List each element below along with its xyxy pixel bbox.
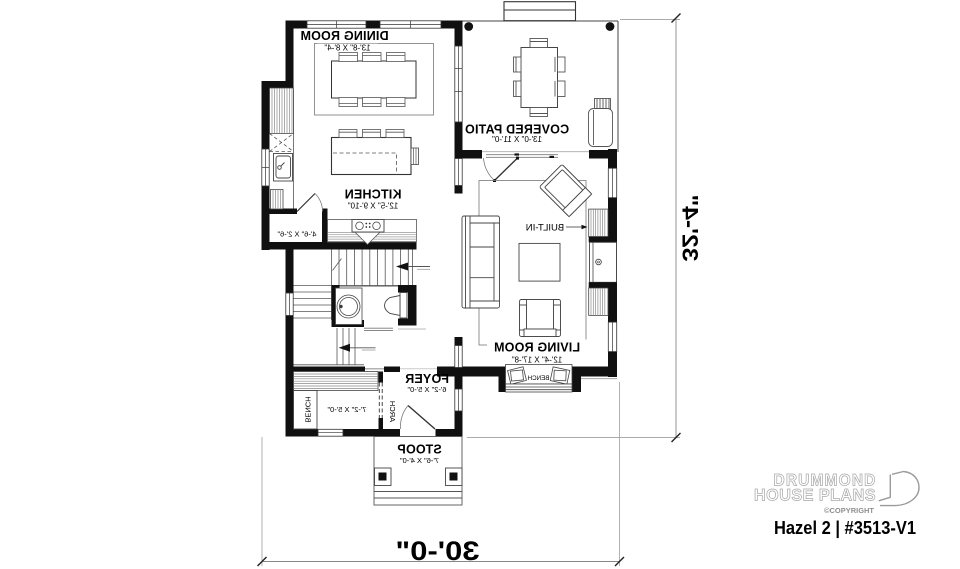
svg-text:LIVING ROOM: LIVING ROOM (494, 341, 580, 355)
svg-text:FOYER: FOYER (405, 372, 449, 386)
svg-text:KITCHEN: KITCHEN (345, 188, 402, 202)
svg-text:12'-5" X 9'-10": 12'-5" X 9'-10" (348, 202, 399, 211)
svg-text:6'-2" X 5'-0": 6'-2" X 5'-0" (407, 385, 446, 394)
svg-text:STOOP: STOOP (397, 443, 442, 457)
svg-text:©COPYRIGHT: ©COPYRIGHT (824, 507, 875, 515)
svg-text:7'-2" X 5'-0": 7'-2" X 5'-0" (327, 405, 366, 414)
svg-text:BENCH: BENCH (304, 396, 313, 422)
svg-text:4'-6" X 2'-6": 4'-6" X 2'-6" (277, 230, 316, 239)
svg-text:BUILT-IN: BUILT-IN (526, 223, 564, 234)
svg-text:7'-6" X 4'-0": 7'-6" X 4'-0" (400, 456, 439, 465)
svg-text:Hazel 2 | #3513-V1: Hazel 2 | #3513-V1 (774, 518, 916, 538)
svg-text:BENCH: BENCH (528, 375, 550, 382)
svg-text:30'-0": 30'-0" (396, 536, 480, 566)
svg-text:32'-4": 32'-4" (678, 195, 703, 262)
svg-text:13'-0" X 11'-0": 13'-0" X 11'-0" (492, 135, 542, 144)
svg-text:HOUSE PLANS: HOUSE PLANS (754, 487, 876, 505)
svg-text:DINING ROOM: DINING ROOM (300, 29, 388, 43)
svg-text:13'-8" X 8'-4": 13'-8" X 8'-4" (324, 44, 370, 53)
svg-text:12'-4" X 17'-8": 12'-4" X 17'-8" (512, 356, 563, 365)
svg-text:ARCH: ARCH (388, 401, 397, 422)
